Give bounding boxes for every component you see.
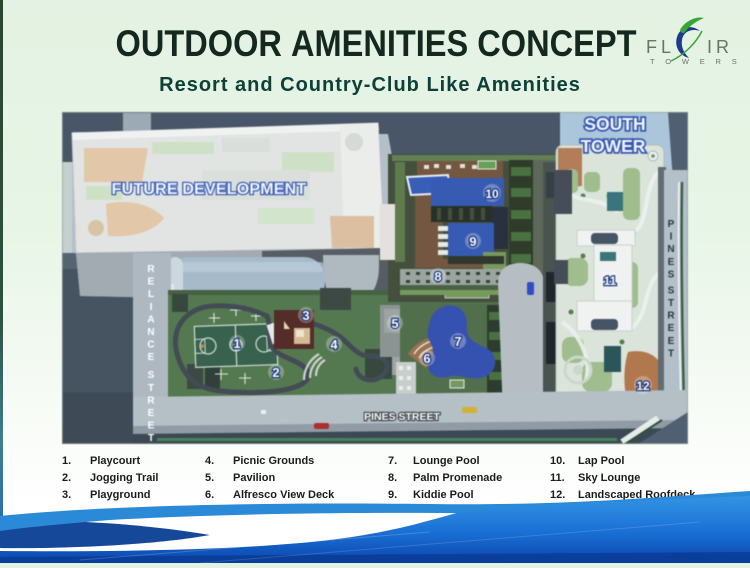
svg-text:4: 4 (330, 337, 338, 352)
svg-text:TOWERS: TOWERS (650, 57, 748, 66)
svg-text:12: 12 (636, 379, 650, 393)
svg-text:3: 3 (302, 308, 309, 323)
svg-text:1: 1 (233, 336, 240, 351)
svg-text:5: 5 (391, 316, 398, 331)
svg-text:IR: IR (707, 37, 733, 57)
svg-text:7: 7 (454, 334, 461, 349)
svg-text:8: 8 (434, 269, 441, 284)
svg-text:9: 9 (469, 234, 476, 249)
svg-text:10: 10 (485, 187, 499, 201)
svg-text:FL: FL (646, 37, 675, 57)
svg-text:2: 2 (272, 365, 279, 380)
svg-text:11: 11 (604, 274, 617, 288)
svg-text:6: 6 (423, 351, 430, 366)
